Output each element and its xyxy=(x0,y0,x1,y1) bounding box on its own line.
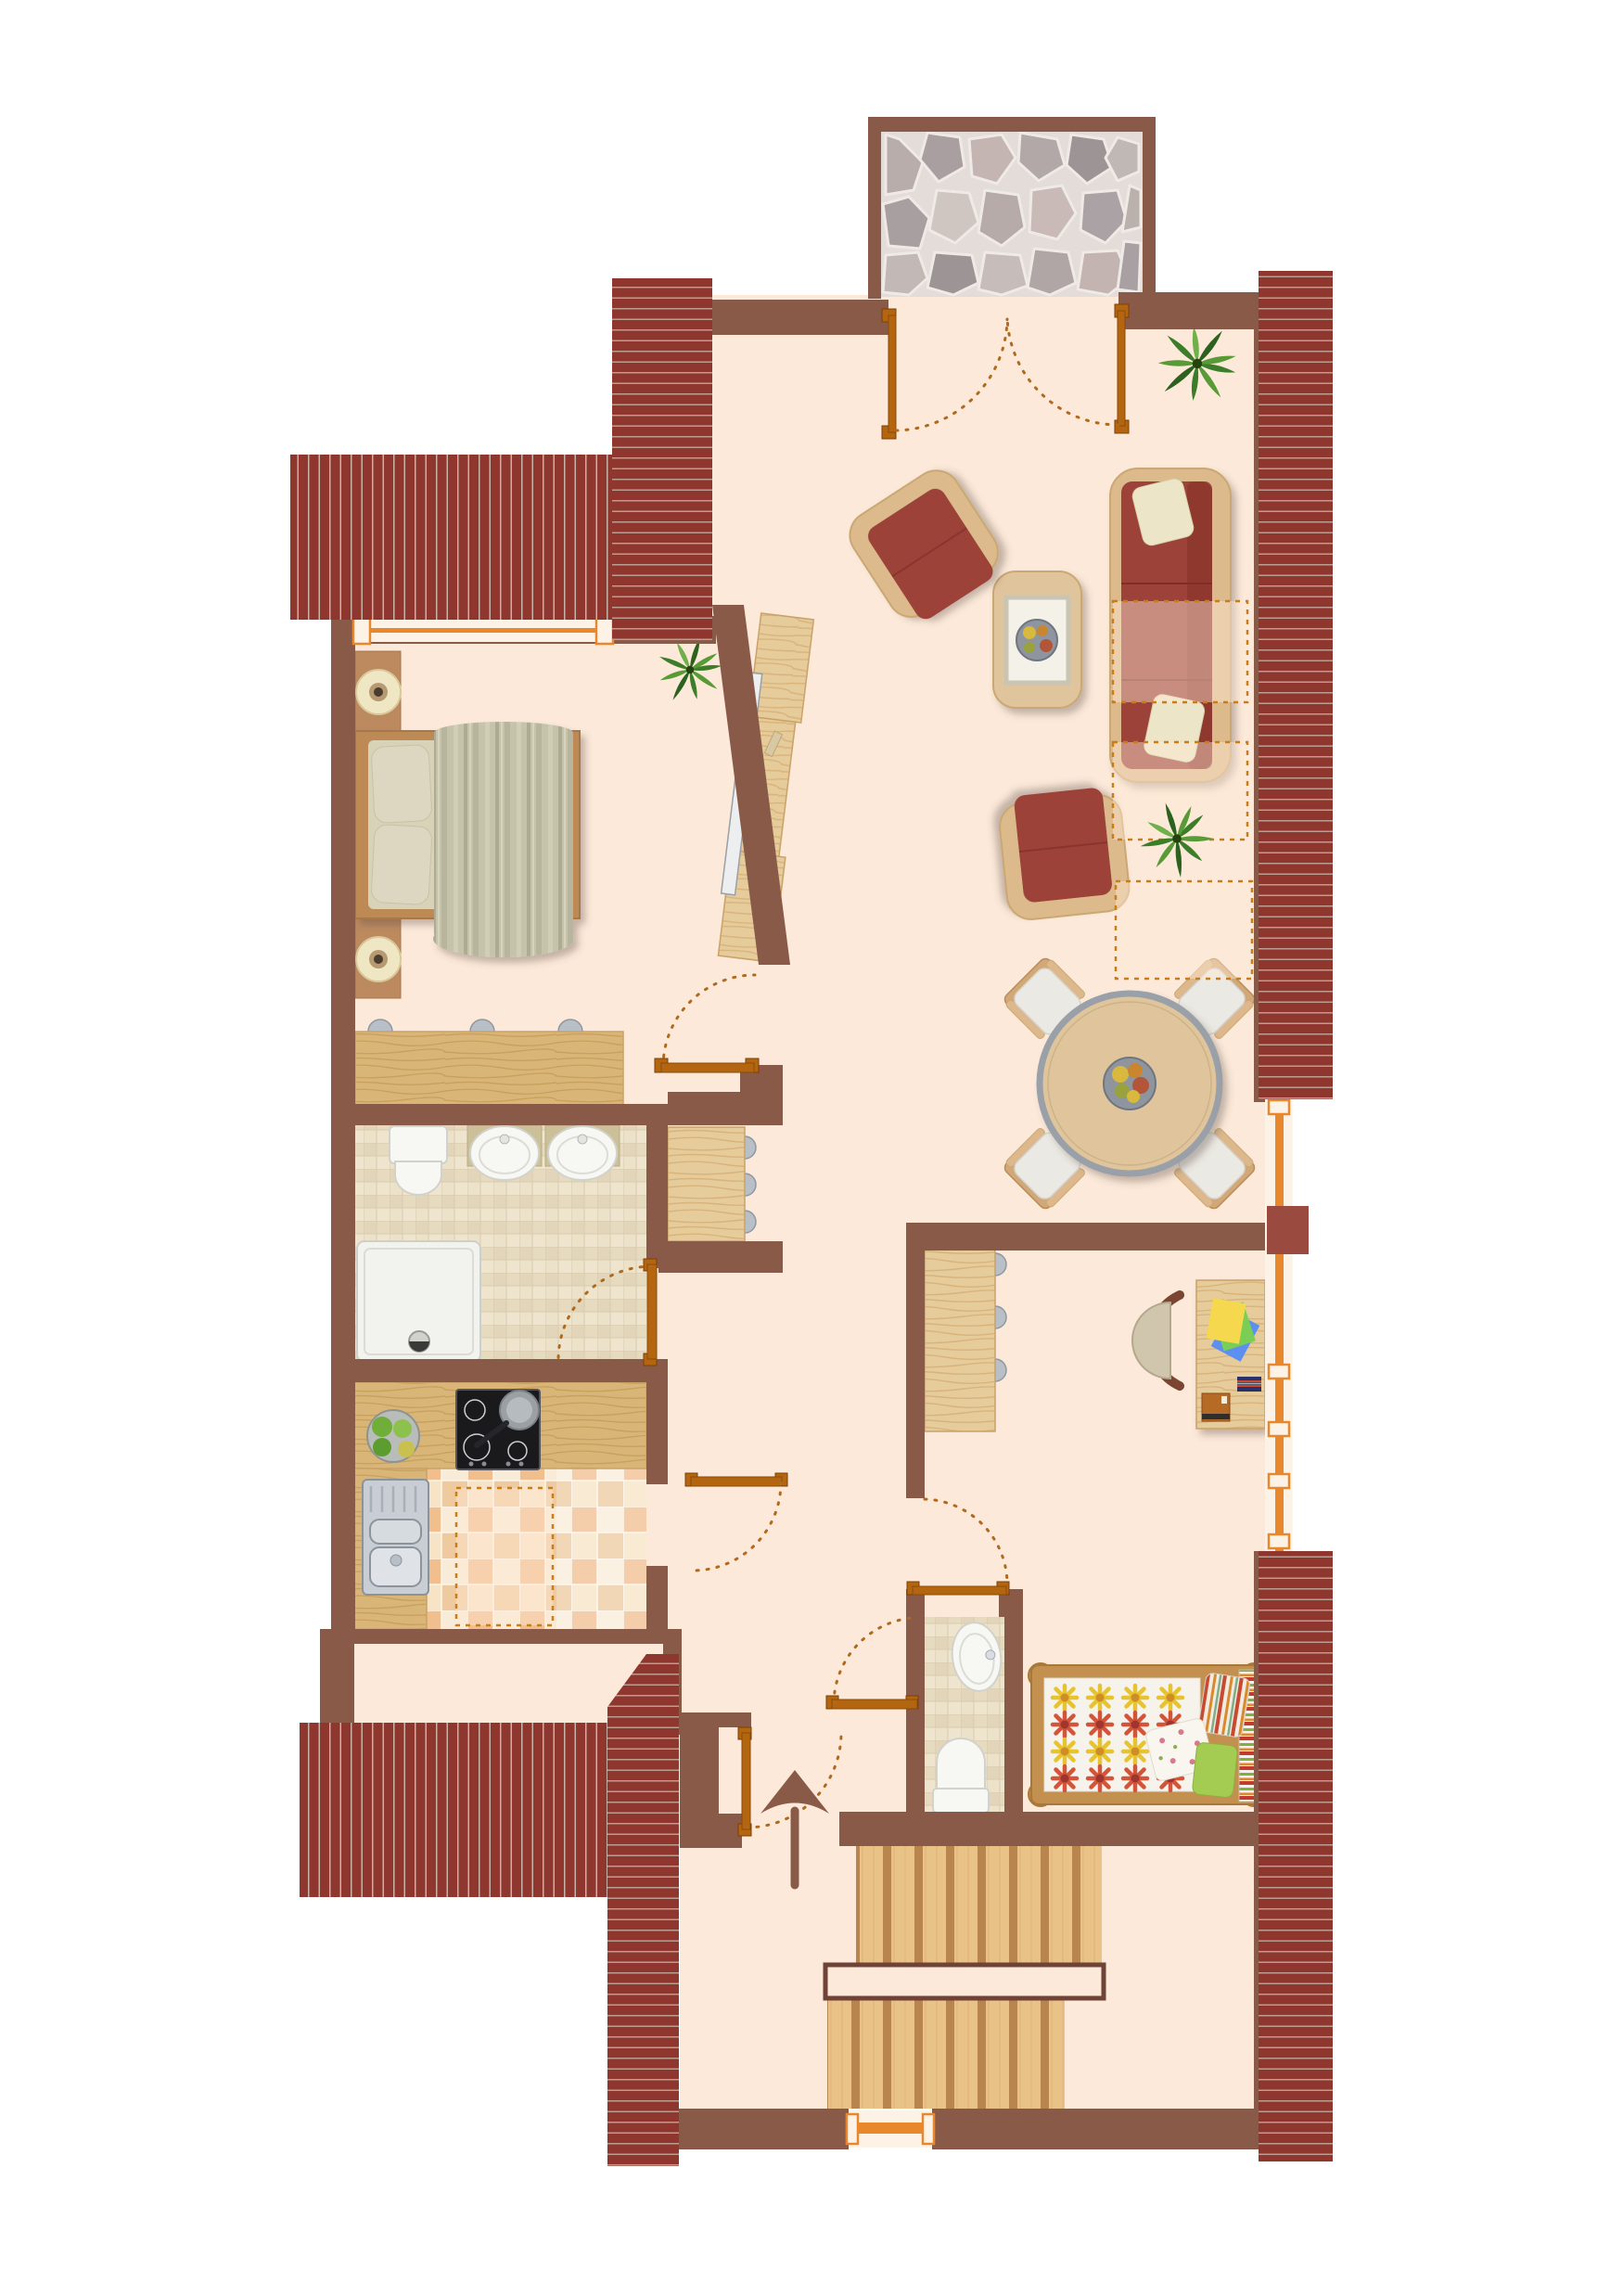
blanket-bottom-fold xyxy=(433,920,574,957)
roof-right-lower xyxy=(1259,1551,1333,2161)
wall-south-right xyxy=(932,2109,1258,2149)
kitchen xyxy=(351,1382,646,1629)
washbasin-right xyxy=(548,1126,617,1180)
dining-table xyxy=(1040,994,1220,1174)
bed-blanket xyxy=(434,729,573,939)
desk xyxy=(1196,1280,1265,1429)
coffee-table xyxy=(993,571,1081,708)
roof-slope-marker-2 xyxy=(1113,742,1247,840)
bathroom xyxy=(351,1125,646,1362)
green-pillow xyxy=(1192,1742,1238,1798)
wall-stairwell-north xyxy=(839,1812,1259,1846)
wall-living-north-right xyxy=(1118,292,1261,329)
bed-pillow-bottom xyxy=(371,824,432,904)
bedroom-window xyxy=(353,616,613,644)
roof-slope-marker-3 xyxy=(1116,881,1252,979)
hallway-cabinet xyxy=(668,1127,756,1241)
dining-set xyxy=(1001,955,1259,1212)
roof-bottom-left-block xyxy=(300,1723,607,1897)
window-pier xyxy=(1267,1206,1309,1254)
storage-box xyxy=(1202,1393,1230,1421)
wall-above-cabinet xyxy=(668,1092,783,1125)
books xyxy=(1237,1377,1261,1392)
wall-kitchen-east-upper xyxy=(646,1382,668,1484)
kitchen-sink xyxy=(363,1480,428,1595)
balcony-parapet-right xyxy=(1143,117,1156,299)
wall-bedroom-south xyxy=(331,1104,668,1125)
wc xyxy=(925,1617,1005,1813)
balcony-parapet-top xyxy=(868,117,1156,132)
wall-southwest xyxy=(320,1629,354,1723)
toilet xyxy=(390,1126,447,1195)
balcony xyxy=(868,117,1156,299)
wall-office-north xyxy=(906,1223,1268,1251)
cooktop xyxy=(456,1390,540,1469)
roof-slope-marker-1 xyxy=(1113,601,1247,702)
stair-upper-flight xyxy=(856,1846,1102,1965)
roof-top-strip xyxy=(612,278,712,640)
east-window xyxy=(1265,1099,1309,1554)
balcony-stones xyxy=(883,133,1141,295)
floor-plan: Attic apartment floor plan – top view xyxy=(0,0,1623,2296)
lamp-top xyxy=(356,670,401,714)
dresser xyxy=(355,1020,623,1106)
paper-yellow xyxy=(1206,1298,1246,1344)
roof-slope-marker-kitchen xyxy=(456,1488,553,1625)
fruit-bowl xyxy=(1016,620,1057,661)
wall-office-west xyxy=(906,1223,925,1498)
wall-kitchen-south xyxy=(320,1629,666,1644)
kitchen-tile-light-zone xyxy=(556,1469,646,1629)
stair-lower-flight xyxy=(827,1998,1065,2109)
wall-south-left xyxy=(679,2109,849,2149)
armchair-bottom xyxy=(997,785,1131,921)
wall-bathroom-south xyxy=(331,1359,668,1382)
roof-left-block xyxy=(290,455,612,620)
bed-pillow-top xyxy=(371,744,432,823)
staircase xyxy=(825,1846,1104,2109)
striped-pillow xyxy=(1197,1673,1250,1738)
washbasin-left xyxy=(470,1126,539,1180)
roof-right-upper xyxy=(1259,271,1333,1099)
kids-room-bed xyxy=(1029,1663,1266,1806)
wc-toilet xyxy=(933,1738,989,1813)
office-sideboard xyxy=(925,1248,1006,1431)
stair-landing xyxy=(825,1965,1104,1998)
wall-wc-east xyxy=(1004,1589,1023,1814)
south-window xyxy=(847,2110,934,2148)
balcony-parapet-left xyxy=(868,117,881,299)
roof-bottom-strip xyxy=(607,1654,679,2166)
wall-west xyxy=(331,616,355,1644)
floor-plan-canvas: Attic apartment floor plan – top view xyxy=(0,0,1623,2296)
fruit-plate xyxy=(367,1410,419,1462)
lamp-bottom xyxy=(356,937,401,981)
wall-entry-foot xyxy=(680,1814,742,1848)
wall-below-cabinet xyxy=(658,1241,783,1273)
shower-tray xyxy=(357,1241,480,1362)
